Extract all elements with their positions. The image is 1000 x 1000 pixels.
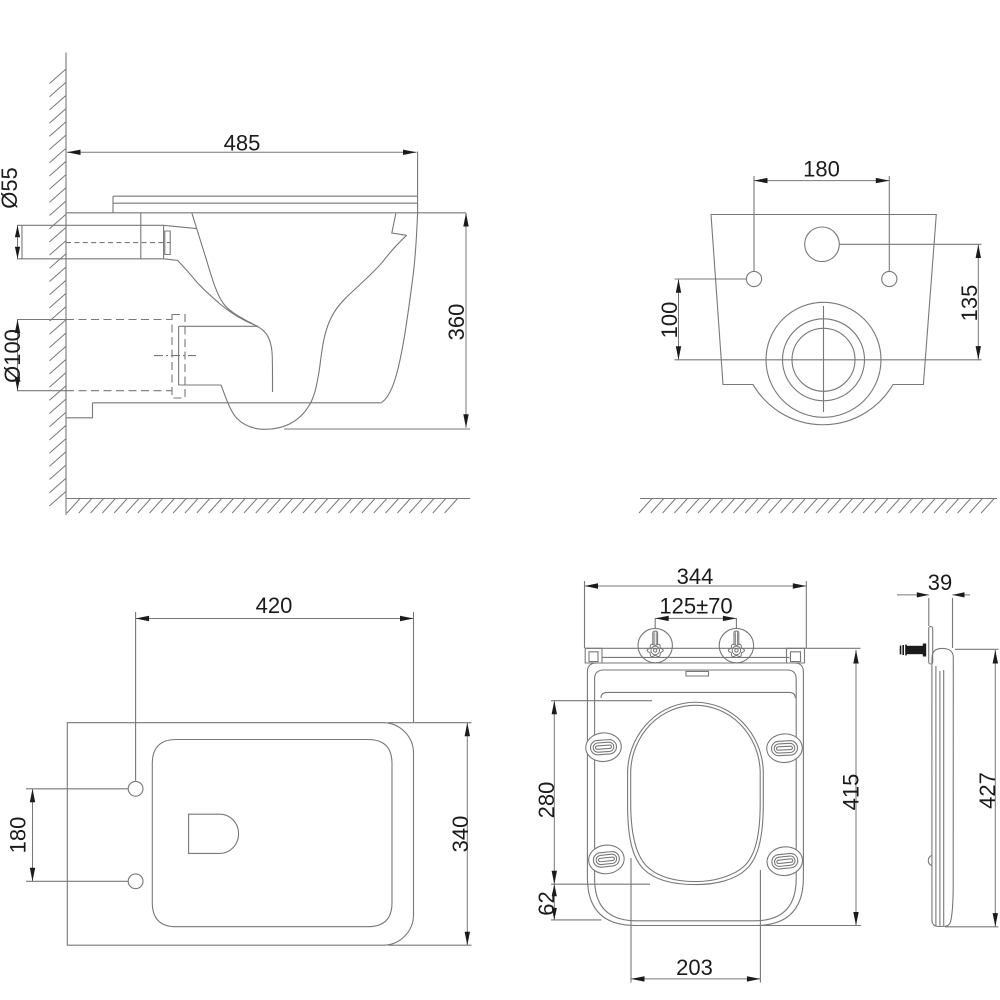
svg-text:180: 180 (803, 157, 840, 182)
svg-text:427: 427 (975, 772, 1000, 809)
svg-text:344: 344 (677, 564, 714, 589)
svg-text:Ø55: Ø55 (0, 167, 22, 209)
svg-text:Ø100: Ø100 (0, 329, 25, 383)
svg-text:62: 62 (534, 891, 559, 915)
svg-text:485: 485 (224, 131, 261, 156)
svg-text:360: 360 (444, 304, 469, 341)
svg-text:415: 415 (839, 774, 864, 811)
svg-text:203: 203 (676, 955, 713, 980)
svg-text:135: 135 (957, 285, 982, 322)
svg-text:180: 180 (6, 817, 31, 854)
svg-text:280: 280 (534, 782, 559, 819)
svg-text:39: 39 (928, 570, 952, 595)
svg-text:420: 420 (256, 593, 293, 618)
svg-text:340: 340 (448, 816, 473, 853)
svg-text:100: 100 (657, 302, 682, 339)
svg-text:125±70: 125±70 (659, 594, 732, 619)
